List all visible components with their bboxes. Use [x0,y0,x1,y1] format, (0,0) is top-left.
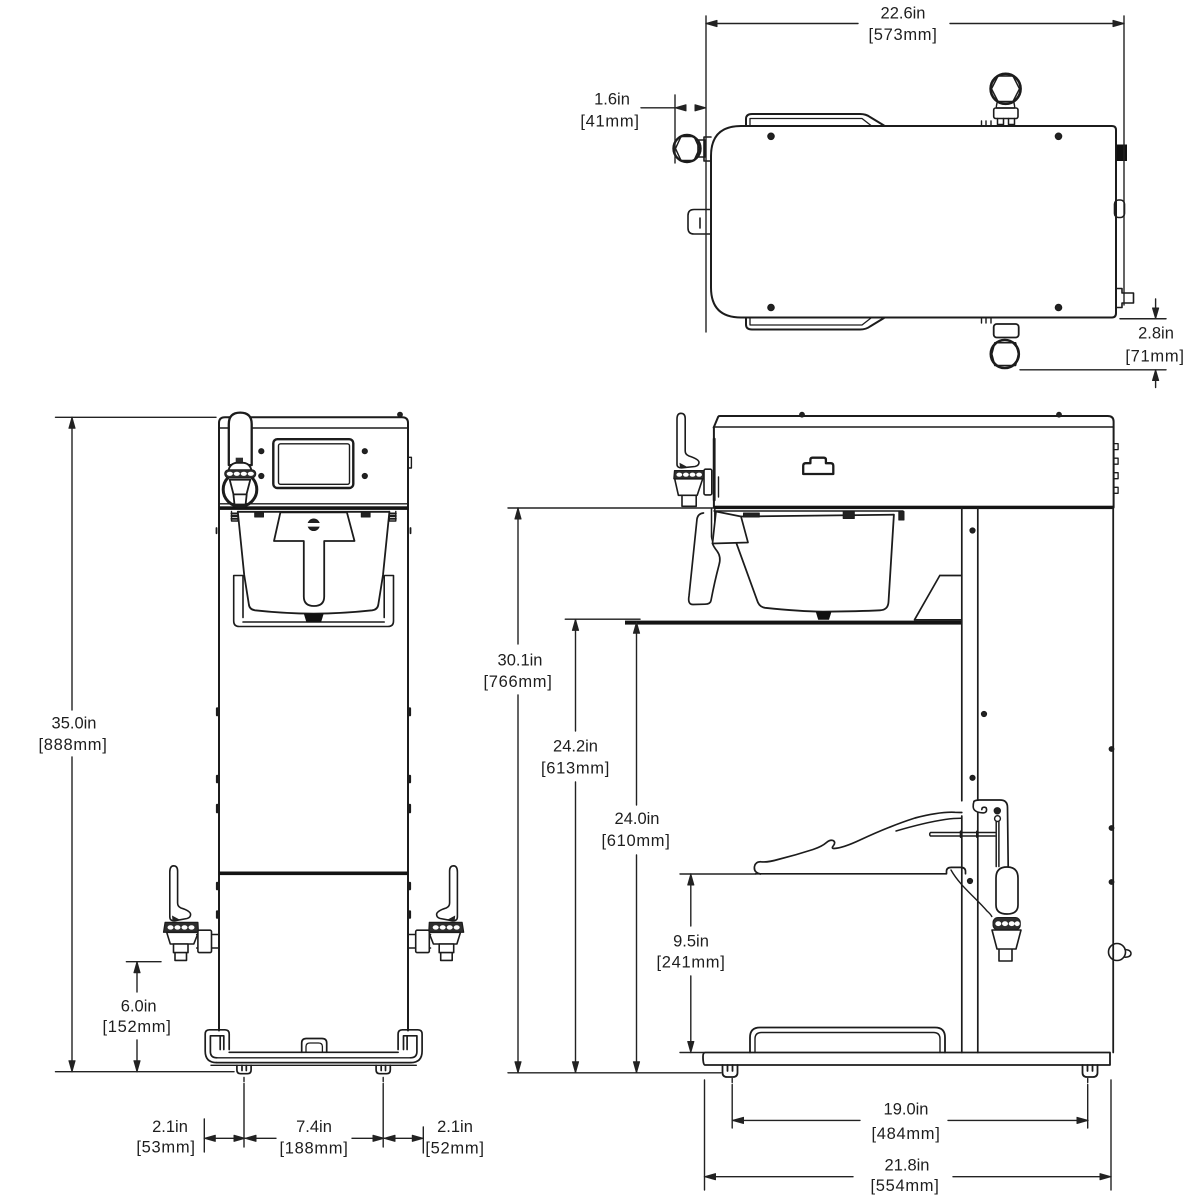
svg-text:24.0in: 24.0in [615,810,660,828]
svg-text:[241mm]: [241mm] [656,954,725,972]
svg-text:[52mm]: [52mm] [425,1140,484,1158]
svg-text:2.1in: 2.1in [152,1118,188,1136]
svg-text:2.1in: 2.1in [437,1118,473,1136]
svg-text:35.0in: 35.0in [52,715,97,733]
svg-text:[613mm]: [613mm] [541,760,610,778]
svg-text:[53mm]: [53mm] [136,1139,195,1157]
svg-text:9.5in: 9.5in [673,933,709,951]
svg-text:[610mm]: [610mm] [601,832,670,850]
svg-text:22.6in: 22.6in [881,5,926,23]
svg-text:[888mm]: [888mm] [38,736,107,754]
svg-text:30.1in: 30.1in [498,652,543,670]
svg-text:21.8in: 21.8in [885,1157,930,1175]
svg-text:19.0in: 19.0in [884,1101,929,1119]
svg-text:1.6in: 1.6in [594,91,630,109]
svg-text:[573mm]: [573mm] [868,26,937,44]
svg-text:[152mm]: [152mm] [102,1018,171,1036]
svg-text:7.4in: 7.4in [296,1118,332,1136]
svg-text:6.0in: 6.0in [121,998,157,1016]
svg-text:24.2in: 24.2in [553,738,598,756]
svg-text:[41mm]: [41mm] [580,113,639,131]
svg-text:[71mm]: [71mm] [1125,348,1184,366]
svg-text:[554mm]: [554mm] [870,1177,939,1195]
svg-text:[766mm]: [766mm] [483,673,552,691]
svg-text:[188mm]: [188mm] [279,1140,348,1158]
svg-text:2.8in: 2.8in [1138,325,1174,343]
svg-text:[484mm]: [484mm] [871,1125,940,1143]
